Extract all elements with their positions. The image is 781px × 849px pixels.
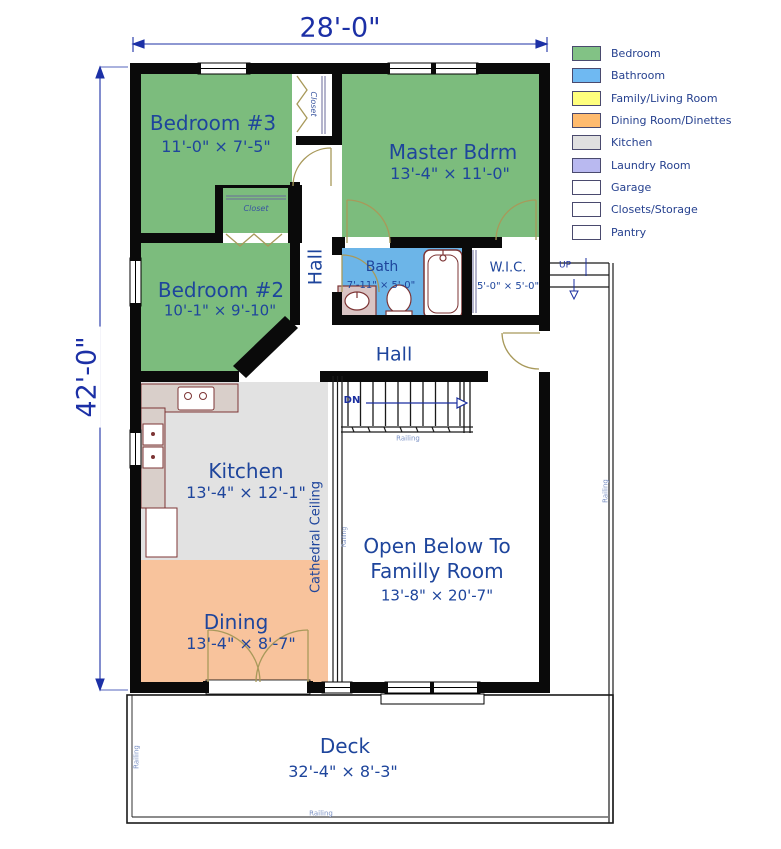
window-bottom-large — [381, 682, 484, 704]
master-bedroom-dims: 13'-4" × 11'-0" — [390, 166, 510, 182]
railing-right-label: Railing — [603, 479, 610, 503]
window-bottom-small — [320, 682, 355, 693]
legend-swatch-dining — [572, 113, 601, 128]
cathedral-ceiling-label: Cathedral Ceiling — [310, 481, 323, 593]
railing-cathedral-label: Railing — [342, 527, 348, 547]
legend-label: Family/Living Room — [611, 92, 718, 105]
bedroom3-label: Bedroom #3 — [150, 113, 276, 133]
window-master-top-2 — [431, 63, 481, 74]
up-label: UP — [559, 262, 571, 271]
floor-plan: 28'-0" 42'-0" Bedroom #3 11'-0" × 7'-5" … — [0, 0, 781, 849]
dn-arrow — [366, 398, 467, 408]
legend-swatch-pantry — [572, 225, 601, 240]
legend-row: Bedroom — [572, 46, 661, 61]
window-kitchen-left — [130, 428, 141, 470]
right-wall-door-opening — [539, 331, 550, 372]
legend-label: Garage — [611, 181, 651, 194]
legend-swatch-closets — [572, 202, 601, 217]
legend-row: Closets/Storage — [572, 202, 698, 217]
bedroom2-label: Bedroom #2 — [158, 280, 284, 300]
legend-row: Pantry — [572, 225, 646, 240]
master-bedroom-label: Master Bdrm — [389, 142, 517, 162]
legend-row: Family/Living Room — [572, 91, 718, 106]
window-bedroom2-left — [130, 256, 141, 308]
legend-swatch-family — [572, 91, 601, 106]
deck-label: Deck — [320, 736, 370, 756]
open-below-line1: Open Below To — [363, 536, 510, 556]
dn-label: DN — [344, 396, 361, 406]
bath-dims: 7'-11" × 5'-0" — [347, 281, 415, 291]
legend-label: Laundry Room — [611, 159, 691, 172]
right-railing — [609, 263, 613, 823]
overall-width-dimension: 28'-0" — [289, 15, 390, 42]
legend-label: Bedroom — [611, 47, 661, 60]
legend-label: Pantry — [611, 226, 646, 239]
dining-dims: 13'-4" × 8'-7" — [186, 636, 296, 652]
deck-dims: 32'-4" × 8'-3" — [288, 764, 398, 780]
bath-label: Bath — [366, 260, 399, 274]
legend-swatch-bathroom — [572, 68, 601, 83]
up-arrow — [570, 258, 586, 299]
legend-row: Bathroom — [572, 68, 665, 83]
legend-row: Kitchen — [572, 135, 652, 150]
legend-row: Garage — [572, 180, 651, 195]
window-bedroom3-top — [196, 63, 251, 74]
bedroom3-door — [293, 148, 331, 186]
kitchen-label: Kitchen — [208, 461, 283, 481]
fridge — [146, 508, 177, 557]
legend-label: Kitchen — [611, 136, 652, 149]
kitchen-dims: 13'-4" × 12'-1" — [186, 485, 306, 501]
hall-exterior-door — [502, 333, 540, 369]
legend-row: Dining Room/Dinettes — [572, 113, 731, 128]
railing-deck-left-label: Railing — [134, 745, 141, 769]
stair-railing — [341, 427, 473, 432]
open-below-line2: Familly Room — [370, 561, 503, 581]
legend-swatch-garage — [572, 180, 601, 195]
bedroom3-dims: 11'-0" × 7'-5" — [161, 139, 271, 155]
legend-label: Closets/Storage — [611, 203, 698, 216]
legend-swatch-laundry — [572, 158, 601, 173]
bifold-closet-top — [297, 76, 307, 132]
legend-swatch-bedroom — [572, 46, 601, 61]
french-door-opening — [203, 680, 313, 694]
wic-dims: 5'-0" × 5'-0" — [477, 282, 539, 292]
railing-deck-bottom-label: Railing — [309, 811, 333, 818]
railing-stairs-label: Railing — [396, 436, 420, 443]
open-below-dims: 13'-8" × 20'-7" — [381, 589, 493, 604]
dining-label: Dining — [204, 612, 269, 632]
deck-outline — [127, 695, 613, 823]
hall-upper-label: Hall — [307, 249, 326, 286]
window-master-top-1 — [385, 63, 433, 74]
bathtub — [424, 250, 462, 318]
wic-label: W.I.C. — [490, 262, 527, 275]
legend-label: Bathroom — [611, 69, 665, 82]
legend-row: Laundry Room — [572, 158, 691, 173]
legend-label: Dining Room/Dinettes — [611, 114, 731, 127]
overall-height-dimension: 42'-0" — [74, 326, 101, 427]
stairs — [348, 382, 470, 433]
stove — [178, 387, 214, 410]
closet-top-label: Closet — [309, 92, 317, 117]
closet-bedroom2-label: Closet — [244, 205, 269, 213]
legend-swatch-kitchen — [572, 135, 601, 150]
bedroom2-dims: 10'-1" × 9'-10" — [164, 304, 276, 319]
hall-lower-label: Hall — [376, 346, 413, 365]
